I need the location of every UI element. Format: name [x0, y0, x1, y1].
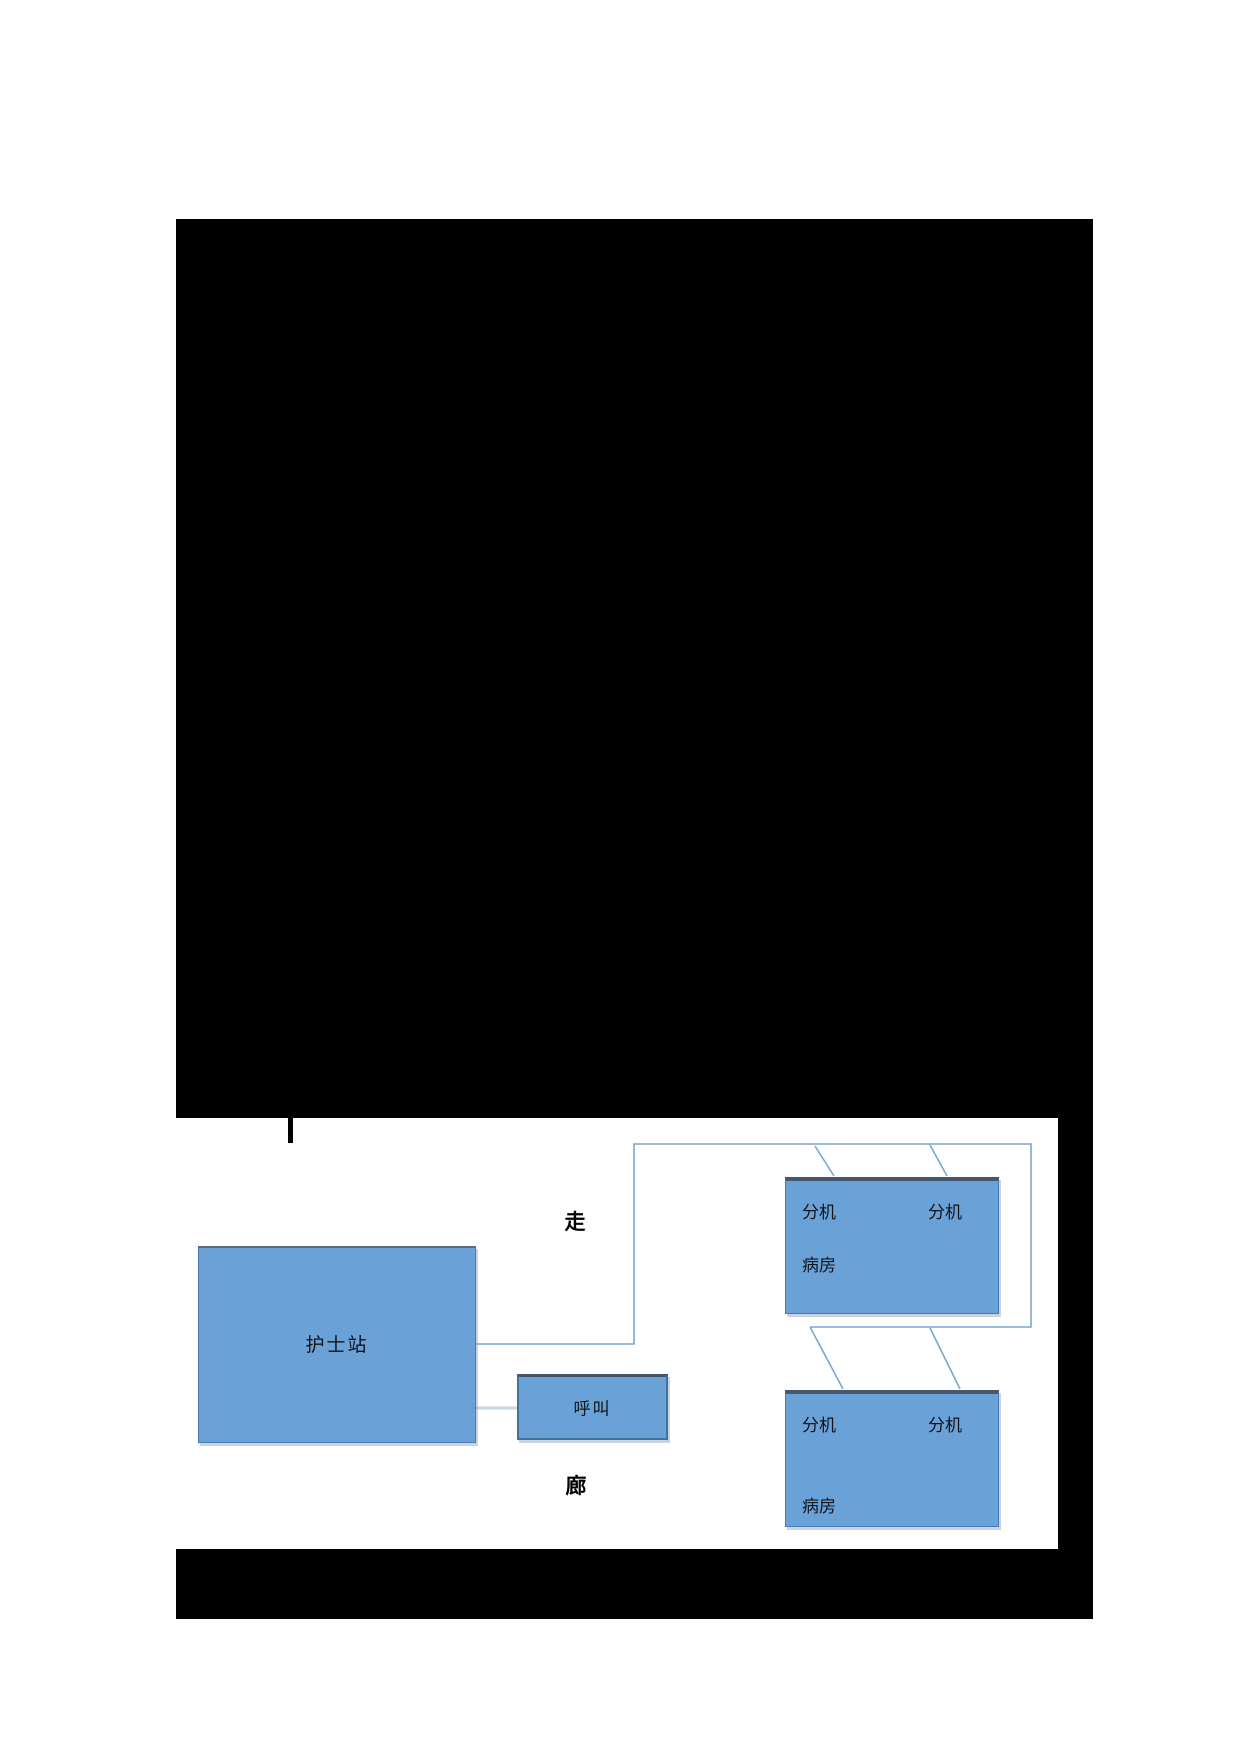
document-page: 护士站 呼叫 分机 分机 病房 分机 分机 病房 走 廊 — [0, 0, 1240, 1754]
ward-room-label: 病房 — [802, 1251, 836, 1276]
nurse-station-label: 护士站 — [199, 1330, 475, 1357]
extension-label: 分机 — [928, 1411, 962, 1436]
call-button-label: 呼叫 — [519, 1394, 666, 1419]
extension-label: 分机 — [802, 1198, 836, 1223]
extension-label: 分机 — [802, 1411, 836, 1436]
nurse-station-box: 护士站 — [198, 1246, 476, 1443]
ward-box-lower: 分机 分机 病房 — [785, 1390, 999, 1527]
corridor-label-bottom: 廊 — [559, 1470, 593, 1500]
corridor-label-top: 走 — [558, 1206, 592, 1236]
ward-room-label: 病房 — [802, 1492, 836, 1517]
cursor-tick-mark — [288, 1118, 293, 1143]
ward-box-upper: 分机 分机 病房 — [785, 1177, 999, 1314]
call-button-box: 呼叫 — [517, 1374, 668, 1440]
extension-label: 分机 — [928, 1198, 962, 1223]
